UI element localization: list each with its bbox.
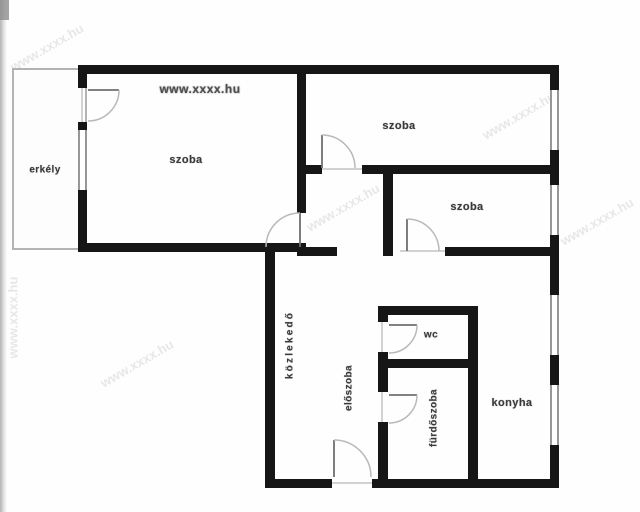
wall	[550, 150, 559, 185]
wall	[378, 422, 388, 479]
room-label-hall: előszoba	[344, 365, 355, 411]
wall	[378, 306, 388, 322]
window	[550, 385, 559, 445]
wall	[78, 65, 87, 88]
wall	[297, 247, 337, 256]
room-label-bathroom: fürdőszoba	[429, 389, 440, 447]
door-swings	[0, 0, 640, 512]
door-arc	[322, 135, 355, 168]
diagonal-watermark: www.xxxx.hu	[8, 21, 86, 75]
door-arc	[88, 90, 119, 121]
room-label-kitchen: konyha	[492, 397, 533, 409]
scan-corner-mark	[0, 0, 9, 20]
wall	[297, 165, 322, 174]
door-threshold	[81, 88, 83, 122]
door-arc	[389, 325, 417, 353]
window	[550, 295, 559, 355]
site-watermark-text: www.xxxx.hu	[159, 82, 240, 96]
wall	[550, 65, 559, 90]
door-threshold	[400, 250, 445, 252]
room-label-room-middle-right: szoba	[450, 201, 483, 213]
wall	[378, 359, 478, 368]
wall	[378, 352, 388, 392]
room-label-room-top-right: szoba	[382, 120, 415, 132]
door-threshold	[332, 482, 372, 484]
wall	[78, 122, 87, 130]
wall	[78, 65, 559, 74]
wall	[468, 306, 478, 479]
room-label-balcony: erkély	[29, 165, 60, 176]
door-arc	[334, 440, 371, 477]
diagonal-watermark: www.xxxx.hu	[304, 181, 382, 235]
scan-edge-band	[0, 0, 7, 512]
wall	[550, 355, 559, 385]
window	[550, 185, 559, 235]
diagonal-watermark: www.xxxx.hu	[558, 195, 636, 249]
balcony-outline	[12, 68, 87, 250]
window	[78, 130, 87, 190]
room-label-corridor: közlekedő	[285, 311, 296, 379]
diagonal-watermark: www.xxxx.hu	[5, 277, 20, 359]
window	[550, 90, 559, 150]
wall	[265, 247, 275, 488]
door-threshold	[322, 168, 362, 170]
diagonal-watermark: www.xxxx.hu	[98, 337, 176, 391]
door-arc	[266, 213, 300, 247]
floor-plan: www.xxxx.hu www.xxxx.hu www.xxxx.hu www.…	[0, 0, 640, 512]
room-label-room-large: szoba	[169, 154, 202, 166]
diagonal-watermark: www.xxxx.hu	[480, 89, 558, 143]
door-threshold	[381, 392, 383, 422]
door-arc	[389, 395, 417, 423]
wall	[297, 65, 306, 213]
wall	[445, 247, 559, 256]
door-arc	[407, 219, 439, 251]
wall	[372, 479, 559, 488]
door-threshold	[381, 322, 383, 352]
wall	[383, 174, 393, 256]
wall	[550, 235, 559, 295]
wall	[265, 479, 332, 488]
room-label-wc: wc	[424, 330, 438, 341]
wall	[378, 306, 478, 315]
wall	[362, 165, 559, 174]
wall	[550, 445, 559, 488]
